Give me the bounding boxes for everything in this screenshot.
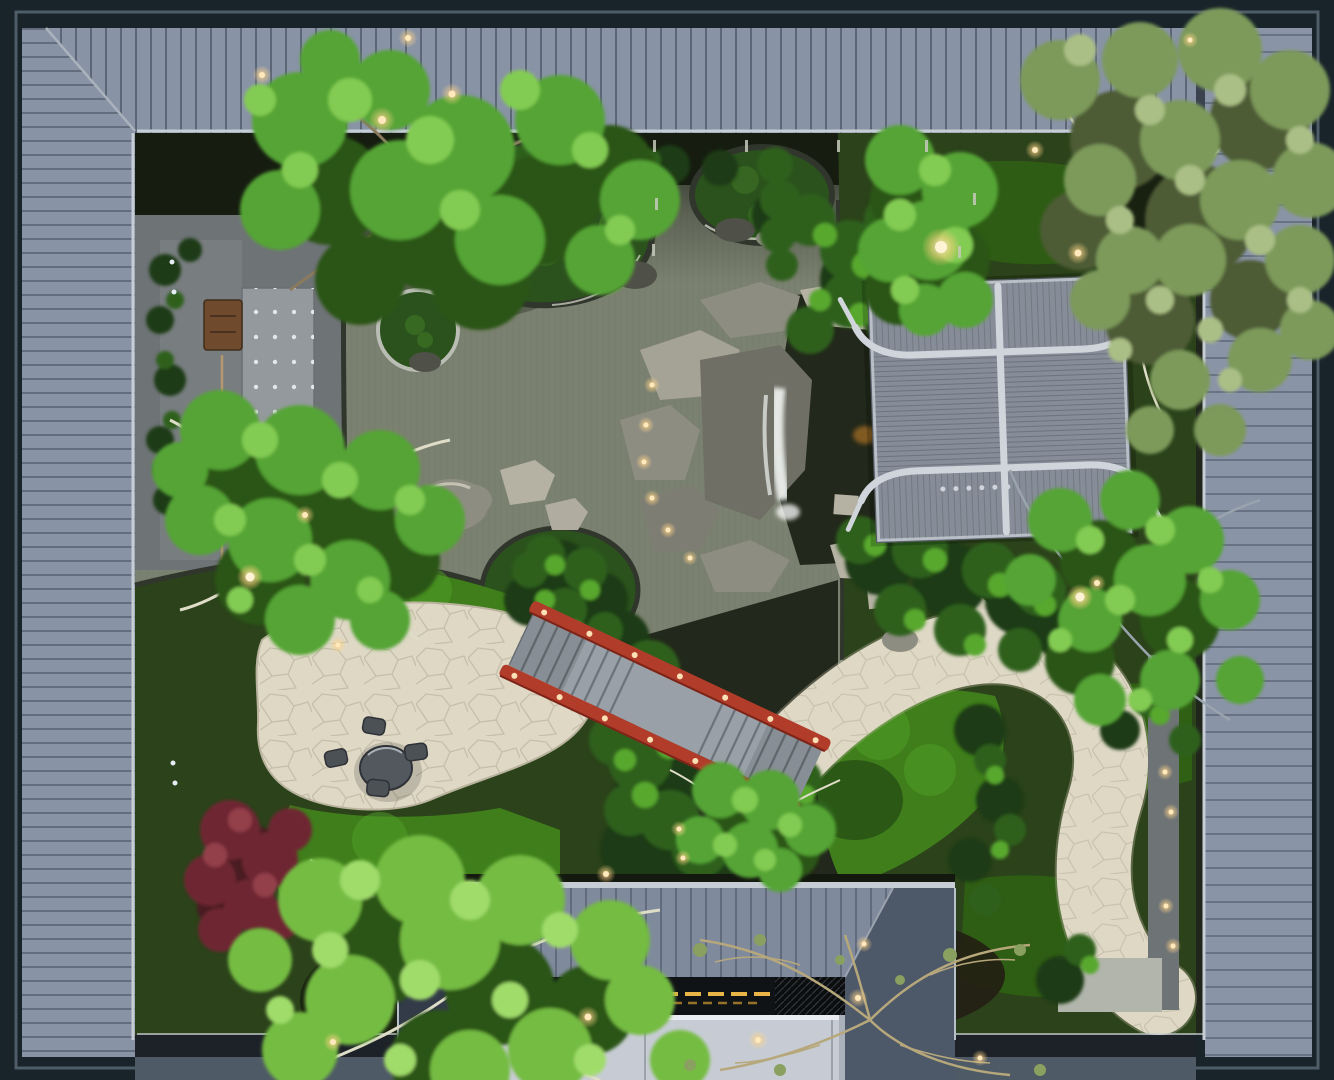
skylight-grille-hatch bbox=[775, 977, 845, 1015]
waterfall-foam bbox=[776, 504, 800, 520]
island-rock-4 bbox=[409, 352, 441, 372]
courtyard-aerial-photo bbox=[0, 0, 1334, 1080]
flat-roof-edge-right bbox=[839, 1015, 845, 1080]
island-rock-2 bbox=[715, 218, 755, 242]
left-roof-planks bbox=[22, 28, 135, 1057]
scene-canvas bbox=[0, 0, 1334, 1080]
wood-bench bbox=[204, 300, 242, 350]
waterfall bbox=[777, 388, 784, 500]
